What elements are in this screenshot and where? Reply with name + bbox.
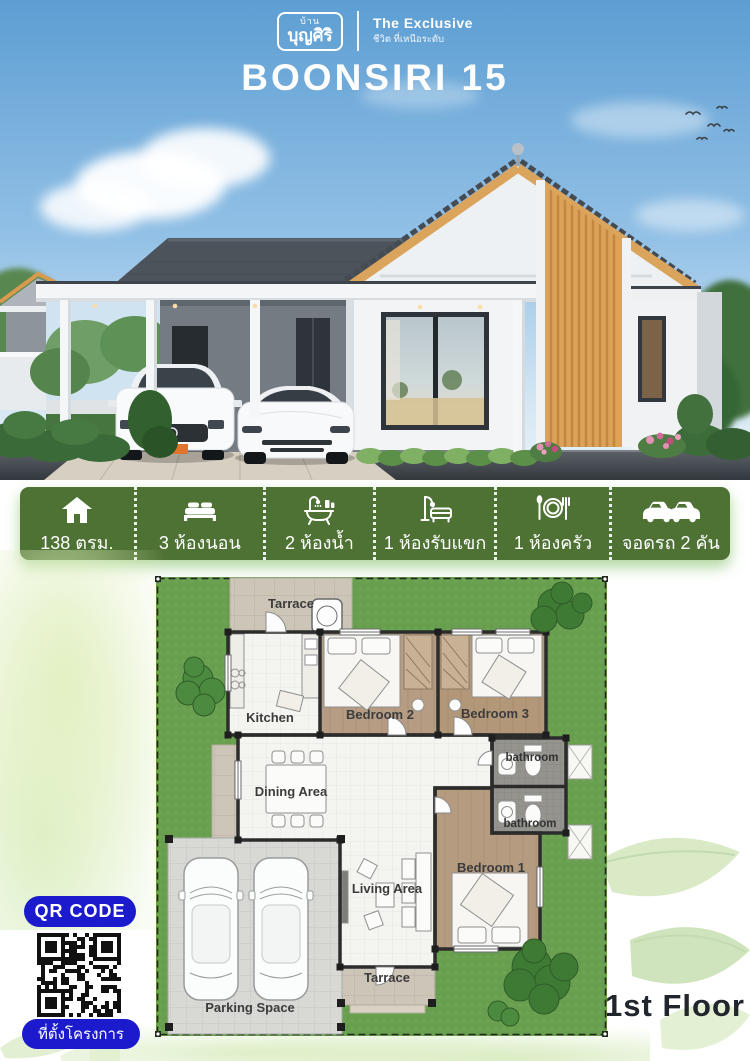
porch [346,300,522,460]
bed-icon [181,493,219,525]
floor-plan-drawing: Tarrace Kitchen Bedroom 2 Bedroom 3 bath… [154,575,609,1038]
tagline-sub: ชีวิต ที่เหนือระดับ [373,32,473,47]
room-label-terrace-top: Tarrace [268,596,314,611]
qr-code[interactable] [36,932,122,1018]
room-label-living: Living Area [352,881,423,896]
banner-item-label: 3 ห้องนอน [159,528,241,557]
floor-plan: Tarrace Kitchen Bedroom 2 Bedroom 3 bath… [154,575,609,1038]
banner-item-label: 1 ห้องครัว [514,528,592,557]
room-label-kitchen: Kitchen [246,710,294,725]
room-label-bedroom3: Bedroom 3 [461,706,529,721]
logo-brand-top: บ้าน [287,16,333,26]
room-label-dining: Dining Area [255,784,328,799]
floor-number-label: 1st Floor [600,988,750,1024]
room-label-bathroom-bottom: bathroom [503,818,556,830]
tagline-title: The Exclusive [373,15,473,31]
house-icon [60,493,94,525]
dining-icon [534,493,572,525]
qr-code-button[interactable]: QR CODE [24,896,136,927]
room-label-bathroom-top: bathroom [505,752,558,764]
banner-item-bedrooms: 3 ห้องนอน [134,487,263,560]
sofa-icon [416,493,454,525]
page-title: BOONSIRI 15 [0,57,750,99]
banner-item-kitchen: 1 ห้องครัว [494,487,609,560]
room-label-terrace-bottom: Tarrace [364,970,410,985]
banner-item-livingroom: 1 ห้องรับแขก [373,487,494,560]
banner-item-area: 138 ตรม. [20,487,134,560]
brochure-page: บ้าน บุญศิริ The Exclusive ชีวิต ที่เหนื… [0,0,750,1061]
banner-item-label: จอดรถ 2 คัน [622,528,720,557]
cars-icon [642,493,700,525]
roof-finial [512,143,524,155]
logo-brand-name: บุญศิริ [287,26,333,45]
room-label-bedroom1: Bedroom 1 [457,860,525,875]
logo-tagline: The Exclusive ชีวิต ที่เหนือระดับ [373,15,473,47]
banner-item-label: 2 ห้องน้ำ [285,528,354,557]
qr-caption-button[interactable]: ที่ตั้งโครงการ [22,1019,140,1049]
logo-frame: บ้าน บุญศิริ [277,12,343,51]
logo-divider [357,11,359,51]
banner-item-label: 138 ตรม. [40,528,113,557]
feature-banner: 138 ตรม. 3 ห้องนอน 2 ห้องน้ำ 1 ห้องรับแข… [20,487,730,560]
room-label-parking: Parking Space [205,1000,295,1015]
bath-icon [301,493,337,525]
terrace-step [350,1005,425,1013]
banner-item-label: 1 ห้องรับแขก [384,528,486,557]
room-label-bedroom2: Bedroom 2 [346,707,414,722]
house-render-photo: บ้าน บุญศิริ The Exclusive ชีวิต ที่เหนื… [0,0,750,480]
banner-item-parking: จอดรถ 2 คัน [609,487,730,560]
banner-item-bathrooms: 2 ห้องน้ำ [263,487,373,560]
brand-logo: บ้าน บุญศิริ The Exclusive ชีวิต ที่เหนื… [0,11,750,51]
side-walkway [212,745,238,840]
